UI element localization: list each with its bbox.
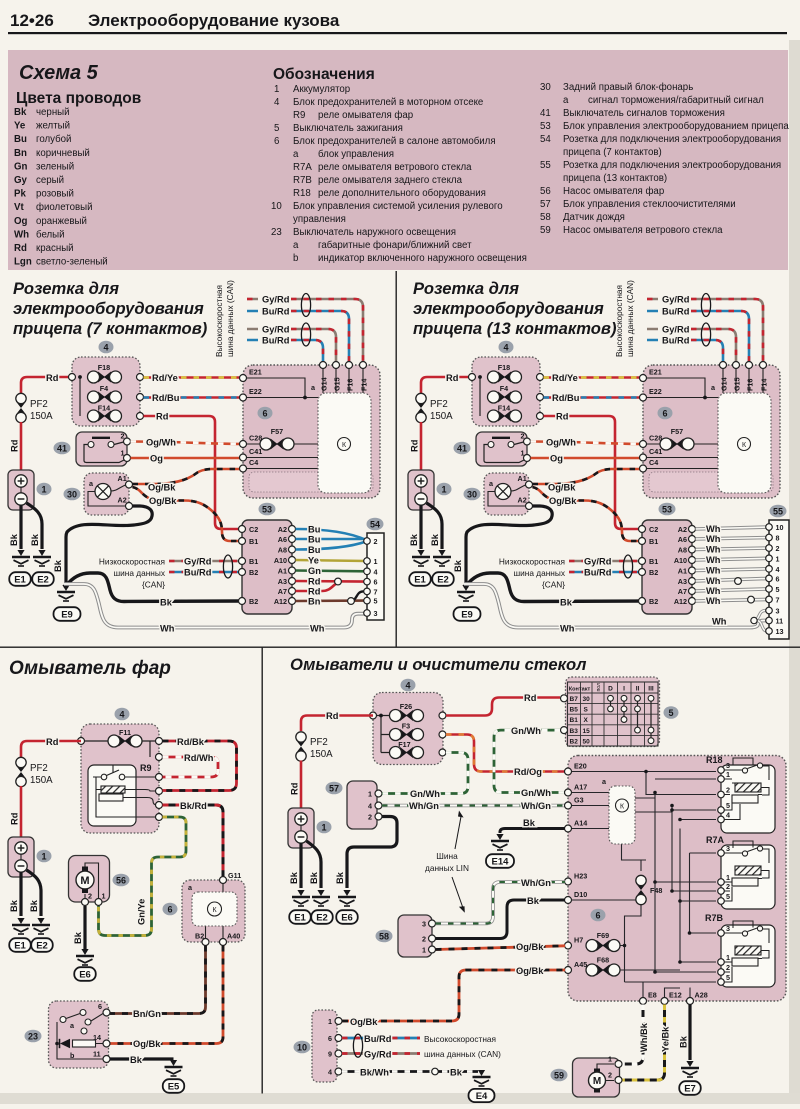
svg-text:Rd: Rd (326, 711, 339, 721)
svg-text:розовый: розовый (36, 189, 74, 200)
svg-text:Электрооборудование кузова: Электрооборудование кузова (88, 11, 340, 30)
svg-text:1: 1 (102, 892, 106, 901)
svg-text:Gy: Gy (14, 175, 28, 186)
svg-text:Wh/Gn: Wh/Gn (521, 801, 551, 811)
svg-text:8: 8 (776, 534, 780, 543)
svg-text:Rd/Wh: Rd/Wh (184, 753, 214, 763)
svg-text:50: 50 (583, 738, 591, 745)
svg-text:Rd: Rd (10, 812, 20, 825)
svg-text:D: D (608, 686, 613, 693)
svg-text:Выключатель наружного освещени: Выключатель наружного освещения (293, 227, 456, 238)
svg-text:6: 6 (776, 574, 780, 583)
svg-text:58: 58 (540, 212, 551, 223)
svg-text:Bk: Bk (335, 871, 345, 884)
svg-text:1: 1 (422, 946, 426, 955)
svg-text:X: X (584, 717, 589, 724)
svg-text:Wh: Wh (706, 555, 721, 565)
svg-text:Rd: Rd (46, 737, 59, 747)
svg-text:5: 5 (726, 973, 730, 982)
svg-text:55: 55 (773, 506, 783, 516)
svg-text:a: a (293, 240, 299, 251)
svg-text:Схема 5: Схема 5 (19, 62, 99, 84)
svg-text:R9: R9 (293, 110, 305, 121)
svg-text:F68: F68 (597, 956, 609, 965)
svg-text:30: 30 (540, 82, 551, 93)
svg-text:E2: E2 (36, 941, 48, 952)
svg-text:Розетка для подключения электр: Розетка для подключения электрооборудова… (563, 160, 781, 171)
svg-text:4: 4 (368, 802, 372, 811)
svg-text:реле омывателя фар: реле омывателя фар (318, 110, 413, 121)
svg-text:R7B: R7B (705, 913, 724, 923)
svg-text:Омыватели и очистители стекол: Омыватели и очистители стекол (290, 655, 587, 674)
svg-text:прицепа (7 контактов): прицепа (7 контактов) (13, 319, 208, 338)
svg-text:1: 1 (321, 822, 326, 832)
svg-text:D10: D10 (574, 890, 587, 899)
svg-text:Блок управления системой усиле: Блок управления системой усиления рулево… (293, 201, 503, 212)
svg-text:1: 1 (726, 953, 730, 962)
svg-text:Выключатель зажигания: Выключатель зажигания (293, 123, 403, 134)
svg-text:Og/Bk: Og/Bk (350, 1017, 378, 1027)
svg-text:Блок предохранителей в моторно: Блок предохранителей в моторном отсеке (293, 97, 483, 108)
svg-text:Bn/Gn: Bn/Gn (133, 1009, 161, 1019)
svg-text:II: II (636, 686, 640, 693)
svg-text:54: 54 (370, 519, 380, 529)
svg-text:управления: управления (293, 214, 346, 225)
svg-text:5: 5 (726, 892, 730, 901)
svg-text:5: 5 (374, 597, 378, 606)
svg-text:E1: E1 (294, 913, 306, 924)
svg-text:1: 1 (41, 851, 46, 861)
svg-text:сигнал торможения/габаритный с: сигнал торможения/габаритный сигнал (588, 95, 764, 106)
svg-text:Wh: Wh (712, 616, 727, 626)
svg-text:150A: 150A (30, 775, 53, 786)
svg-text:2: 2 (608, 1071, 612, 1080)
svg-text:черный: черный (36, 107, 70, 118)
svg-text:Bk: Bk (130, 1055, 143, 1065)
svg-text:3: 3 (776, 607, 780, 616)
svg-text:E1: E1 (14, 941, 26, 952)
svg-text:Gn/Ye: Gn/Ye (137, 899, 147, 925)
svg-text:B1: B1 (570, 717, 579, 724)
svg-text:Og/Bk: Og/Bk (133, 1039, 161, 1049)
svg-text:6: 6 (328, 1034, 332, 1043)
svg-text:15: 15 (583, 728, 591, 735)
svg-text:Bu: Bu (308, 545, 321, 555)
svg-text:Wh: Wh (706, 586, 721, 596)
svg-text:11: 11 (776, 617, 784, 626)
svg-text:H7: H7 (574, 936, 583, 945)
svg-text:Gy/Rd: Gy/Rd (364, 1049, 392, 1059)
svg-text:150A: 150A (310, 749, 333, 760)
svg-text:Rd: Rd (14, 243, 27, 254)
svg-text:F26: F26 (400, 702, 412, 711)
svg-text:H23: H23 (574, 872, 587, 881)
svg-text:Датчик дождя: Датчик дождя (563, 212, 625, 223)
svg-text:R7A: R7A (293, 162, 312, 173)
svg-text:Розетка для подключения электр: Розетка для подключения электрооборудова… (563, 134, 781, 145)
svg-text:R9: R9 (140, 763, 152, 773)
svg-text:3: 3 (726, 761, 730, 770)
svg-text:1: 1 (274, 84, 279, 95)
svg-text:5: 5 (274, 123, 279, 134)
svg-text:2: 2 (88, 892, 92, 901)
svg-text:светло-зеленый: светло-зеленый (36, 257, 108, 268)
svg-text:Розетка для: Розетка для (413, 279, 519, 298)
svg-text:E5: E5 (168, 1082, 180, 1093)
svg-text:4: 4 (374, 567, 378, 576)
svg-text:белый: белый (36, 229, 65, 240)
svg-text:Rd: Rd (290, 782, 300, 795)
svg-text:B2: B2 (195, 932, 204, 941)
svg-text:3: 3 (726, 924, 730, 933)
svg-text:прицепа (13 контактов): прицепа (13 контактов) (563, 173, 667, 184)
svg-text:9: 9 (328, 1050, 332, 1059)
svg-text:Wh: Wh (706, 524, 721, 534)
svg-text:Rd: Rd (308, 577, 321, 587)
svg-text:59: 59 (554, 1070, 564, 1080)
svg-text:10: 10 (297, 1042, 307, 1052)
svg-text:оранжевый: оранжевый (36, 216, 87, 227)
svg-text:Bn: Bn (14, 148, 27, 159)
svg-text:электрооборудования: электрооборудования (13, 299, 204, 318)
svg-text:Bk: Bk (523, 818, 536, 828)
svg-text:Bn: Bn (308, 597, 321, 607)
svg-text:Wh: Wh (706, 596, 721, 606)
svg-text:S: S (584, 707, 589, 714)
svg-text:Аккумулятор: Аккумулятор (293, 84, 350, 95)
svg-text:A14: A14 (574, 819, 587, 828)
svg-text:Vt: Vt (14, 202, 24, 213)
svg-text:желтый: желтый (36, 121, 70, 132)
svg-text:Gn: Gn (308, 566, 321, 576)
svg-text:4: 4 (274, 97, 280, 108)
svg-text:Rd/Bk: Rd/Bk (177, 737, 205, 747)
svg-text:B7: B7 (570, 696, 579, 703)
svg-text:E4: E4 (476, 1091, 488, 1102)
svg-text:Wh/Bk: Wh/Bk (639, 1022, 649, 1052)
svg-text:серый: серый (36, 175, 64, 186)
svg-text:2: 2 (726, 963, 730, 972)
svg-text:41: 41 (540, 108, 551, 119)
svg-text:фиолетовый: фиолетовый (36, 202, 93, 213)
svg-text:a: a (563, 95, 569, 106)
svg-text:Og: Og (14, 216, 28, 227)
svg-text:Bk: Bk (309, 871, 319, 884)
svg-text:реле дополнительного оборудова: реле дополнительного оборудования (318, 188, 486, 199)
svg-text:Блок управления стеклоочистите: Блок управления стеклоочистителями (563, 199, 736, 210)
svg-text:58: 58 (379, 931, 389, 941)
svg-text:Gn/Wh: Gn/Wh (410, 789, 440, 799)
svg-text:данных LIN: данных LIN (425, 863, 469, 873)
svg-text:53: 53 (540, 121, 551, 132)
svg-text:E20: E20 (574, 762, 587, 771)
svg-text:a: a (293, 149, 299, 160)
svg-text:57: 57 (540, 199, 551, 210)
svg-text:23: 23 (28, 1031, 38, 1041)
svg-text:1: 1 (726, 873, 730, 882)
svg-text:6: 6 (167, 904, 172, 914)
svg-text:F48: F48 (650, 886, 662, 895)
svg-text:Pk: Pk (14, 189, 26, 200)
svg-text:E6: E6 (341, 913, 353, 924)
svg-text:4: 4 (726, 811, 730, 820)
svg-text:Wh: Wh (310, 623, 325, 633)
svg-text:1: 1 (368, 790, 372, 799)
svg-text:Высокоскоростная: Высокоскоростная (424, 1034, 496, 1044)
svg-text:13: 13 (776, 627, 784, 636)
svg-text:6: 6 (274, 136, 279, 147)
svg-text:Lgn: Lgn (14, 257, 32, 268)
svg-text:11: 11 (93, 1050, 101, 1059)
svg-text:2: 2 (776, 544, 780, 553)
svg-text:M: M (80, 875, 89, 887)
svg-text:10: 10 (776, 523, 784, 532)
svg-text:Bk: Bk (73, 931, 83, 944)
svg-text:Wh: Wh (706, 576, 721, 586)
svg-text:Bk/Rd: Bk/Rd (180, 801, 207, 811)
svg-text:14: 14 (93, 1033, 101, 1042)
svg-text:b: b (70, 1051, 75, 1060)
svg-text:Цвета проводов: Цвета проводов (16, 90, 141, 107)
svg-text:Bk: Bk (9, 899, 19, 912)
svg-text:реле омывателя ветрового стекл: реле омывателя ветрового стекла (318, 162, 472, 173)
svg-text:10: 10 (271, 201, 282, 212)
svg-text:G11: G11 (228, 871, 241, 880)
svg-text:2: 2 (422, 935, 426, 944)
svg-text:реле омывателя заднего стекла: реле омывателя заднего стекла (318, 175, 463, 186)
svg-text:Насос омывателя ветрового стек: Насос омывателя ветрового стекла (563, 225, 723, 236)
svg-text:голубой: голубой (36, 134, 71, 145)
svg-text:1: 1 (328, 1017, 332, 1026)
svg-text:Bk: Bk (679, 1035, 689, 1048)
svg-text:3: 3 (422, 920, 426, 929)
svg-text:b: b (293, 253, 298, 264)
svg-text:B5: B5 (570, 707, 579, 714)
svg-text:B3: B3 (570, 728, 579, 735)
svg-text:Bk: Bk (14, 107, 27, 118)
svg-text:габаритные фонари/ближний свет: габаритные фонари/ближний свет (318, 240, 472, 251)
svg-text:23: 23 (271, 227, 282, 238)
svg-text:коричневый: коричневый (36, 148, 90, 159)
svg-text:Gn: Gn (14, 161, 28, 172)
svg-text:Bk: Bk (289, 871, 299, 884)
svg-text:30: 30 (583, 696, 591, 703)
svg-text:красный: красный (36, 243, 74, 254)
svg-text:Wh: Wh (706, 545, 721, 555)
svg-text:Bk/Wh: Bk/Wh (360, 1067, 389, 1077)
svg-text:Выключатель сигналов торможени: Выключатель сигналов торможения (563, 108, 725, 119)
svg-text:Wh/Gn: Wh/Gn (521, 878, 551, 888)
svg-text:4: 4 (405, 680, 410, 690)
svg-text:5: 5 (776, 585, 780, 594)
svg-text:7: 7 (776, 595, 780, 604)
svg-text:Шина: Шина (436, 851, 458, 861)
svg-text:Ye: Ye (308, 556, 319, 566)
svg-text:A28: A28 (695, 991, 708, 1000)
svg-text:III: III (648, 686, 654, 693)
svg-text:M: M (593, 1076, 601, 1087)
svg-text:E6: E6 (79, 970, 91, 981)
svg-text:59: 59 (540, 225, 551, 236)
svg-text:4: 4 (119, 709, 124, 719)
svg-text:1: 1 (726, 770, 730, 779)
svg-text:прицепа (13 контактов): прицепа (13 контактов) (413, 319, 617, 338)
svg-text:7: 7 (374, 587, 378, 596)
svg-text:2: 2 (726, 786, 730, 795)
svg-text:A17: A17 (574, 783, 587, 792)
svg-text:Розетка для: Розетка для (13, 279, 119, 298)
svg-text:Ye/Bk: Ye/Bk (661, 1026, 671, 1052)
svg-text:4: 4 (776, 565, 780, 574)
svg-text:I: I (623, 686, 625, 693)
svg-text:Задний правый блок-фонарь: Задний правый блок-фонарь (563, 82, 693, 93)
svg-text:Wh: Wh (14, 229, 29, 240)
svg-text:R18: R18 (706, 755, 723, 765)
svg-text:5: 5 (668, 708, 673, 718)
svg-text:Bu: Bu (14, 134, 27, 145)
svg-text:Контакт: Контакт (569, 687, 591, 693)
svg-text:54: 54 (540, 134, 551, 145)
svg-text:E12: E12 (669, 991, 682, 1000)
svg-text:1: 1 (608, 1055, 612, 1064)
svg-text:2: 2 (374, 537, 378, 546)
svg-text:электрооборудования: электрооборудования (413, 299, 604, 318)
svg-text:6: 6 (374, 578, 378, 587)
svg-text:2: 2 (368, 813, 372, 822)
svg-text:1: 1 (776, 554, 780, 563)
svg-text:55: 55 (540, 160, 551, 171)
svg-text:3: 3 (726, 844, 730, 853)
svg-text:3: 3 (374, 609, 378, 618)
svg-text:G3: G3 (574, 796, 584, 805)
svg-text:Блок управления электрооборудо: Блок управления электрооборудованием при… (563, 121, 789, 132)
svg-text:Bk: Bk (527, 896, 540, 906)
svg-text:F11: F11 (119, 728, 131, 737)
svg-text:Rd: Rd (308, 587, 321, 597)
svg-text:зеленый: зеленый (36, 161, 74, 172)
svg-text:прицепа (7 контактов): прицепа (7 контактов) (563, 147, 662, 158)
svg-text:R18: R18 (293, 188, 311, 199)
svg-text:12•26: 12•26 (10, 11, 54, 30)
svg-text:индикатор включенного наружног: индикатор включенного наружного освещени… (318, 253, 527, 264)
svg-text:56: 56 (116, 875, 126, 885)
svg-text:F69: F69 (597, 931, 609, 940)
svg-text:E14: E14 (492, 857, 510, 868)
svg-text:PF2: PF2 (30, 763, 48, 774)
svg-text:блок управления: блок управления (318, 149, 394, 160)
svg-text:Gn/Wh: Gn/Wh (521, 788, 551, 798)
svg-text:E2: E2 (316, 913, 328, 924)
svg-text:Bk: Bk (450, 1067, 463, 1077)
svg-text:E7: E7 (684, 1084, 696, 1095)
svg-text:Ye: Ye (14, 121, 26, 132)
svg-text:Og/Bk: Og/Bk (516, 966, 544, 976)
svg-text:шина данных (CAN): шина данных (CAN) (424, 1049, 501, 1059)
svg-text:Rd: Rd (524, 693, 537, 703)
svg-text:A45: A45 (574, 960, 587, 969)
svg-text:6: 6 (595, 910, 600, 920)
svg-text:E8: E8 (648, 991, 657, 1000)
svg-text:57: 57 (329, 783, 339, 793)
svg-text:A40: A40 (227, 932, 240, 941)
svg-text:Bk: Bk (29, 899, 39, 912)
svg-text:Обозначения: Обозначения (273, 66, 375, 83)
svg-text:Bu: Bu (308, 525, 321, 535)
svg-text:R7A: R7A (706, 835, 725, 845)
svg-text:F3: F3 (402, 722, 410, 731)
svg-text:Wh: Wh (706, 566, 721, 576)
svg-text:Rd/Og: Rd/Og (514, 767, 542, 777)
svg-text:1: 1 (374, 557, 378, 566)
svg-text:PF2: PF2 (310, 737, 328, 748)
svg-text:Насос омывателя фар: Насос омывателя фар (563, 186, 664, 197)
svg-text:B2: B2 (570, 738, 579, 745)
svg-text:2: 2 (726, 882, 730, 891)
svg-text:Bu/Rd: Bu/Rd (364, 1034, 392, 1044)
svg-text:4: 4 (328, 1068, 332, 1077)
svg-text:пол.: пол. (596, 681, 602, 691)
svg-text:Gn/Wh: Gn/Wh (511, 726, 541, 736)
svg-text:Wh/Gn: Wh/Gn (409, 801, 439, 811)
svg-text:Wh: Wh (706, 534, 721, 544)
svg-text:Bu: Bu (308, 535, 321, 545)
svg-text:56: 56 (540, 186, 551, 197)
svg-text:Блок предохранителей в салоне: Блок предохранителей в салоне автомобиля (293, 136, 496, 147)
svg-text:6: 6 (98, 1002, 102, 1011)
svg-text:Og/Bk: Og/Bk (516, 942, 544, 952)
svg-text:R7B: R7B (293, 175, 312, 186)
svg-text:5: 5 (726, 801, 730, 810)
svg-text:Омыватель фар: Омыватель фар (9, 658, 171, 679)
